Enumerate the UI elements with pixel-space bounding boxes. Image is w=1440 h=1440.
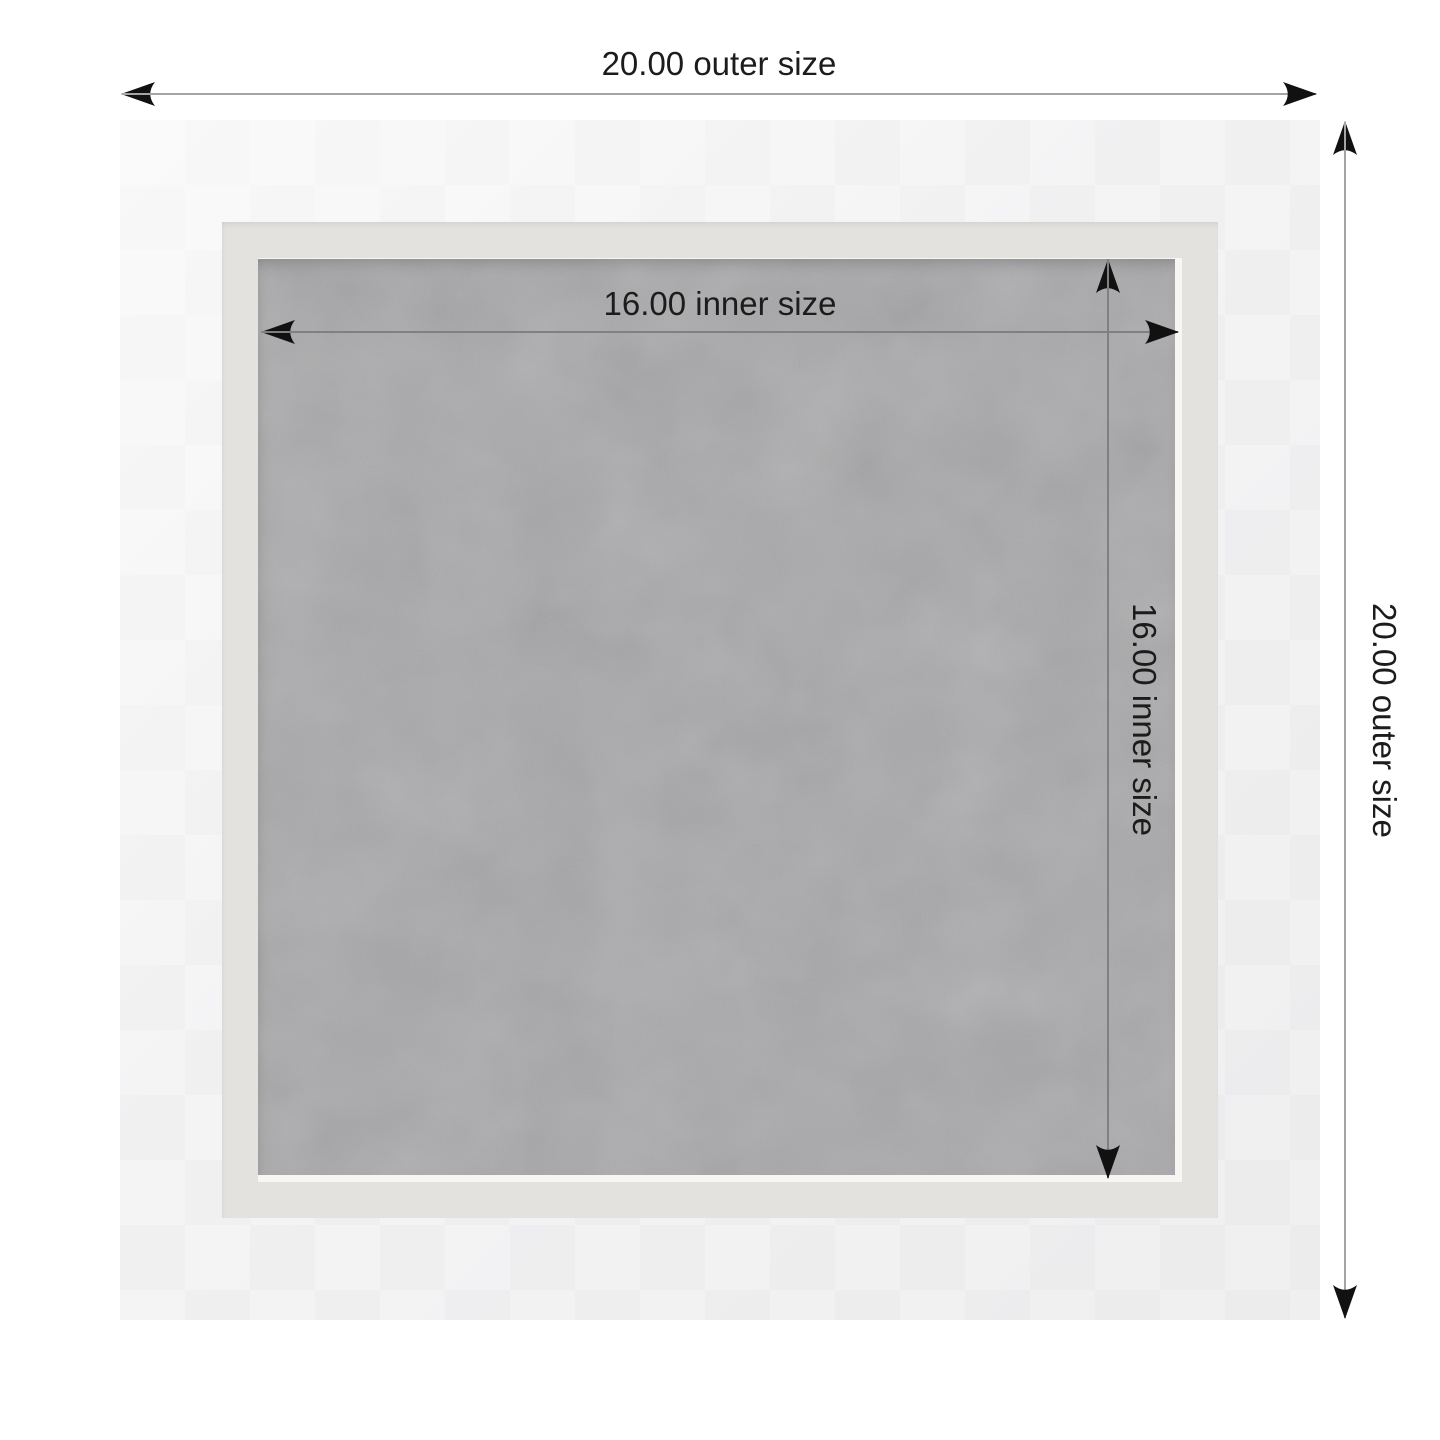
outer-width-dimension-line [120, 81, 1318, 107]
dimension-line [1107, 260, 1109, 1178]
arrow-down-icon [1095, 1144, 1121, 1180]
felt-liner [258, 258, 1182, 1182]
felt-texture [258, 259, 1175, 1175]
outer-height-label: 20.00 outer size [1356, 120, 1402, 1320]
dimension-line [1344, 122, 1346, 1318]
outer-height-dimension-line [1332, 120, 1358, 1320]
inner-height-label: 16.00 inner size [1116, 258, 1162, 1180]
inner-width-dimension-line [260, 319, 1180, 345]
product-dimension-diagram: 20.00 outer size 20.00 outer size 16.00 … [0, 0, 1440, 1440]
arrow-right-icon [1282, 81, 1318, 107]
inner-width-label: 16.00 inner size [260, 286, 1180, 322]
outer-width-label: 20.00 outer size [120, 46, 1318, 82]
felt-board-surface [258, 259, 1175, 1175]
dimension-line [122, 93, 1316, 95]
arrow-down-icon [1332, 1284, 1358, 1320]
frame-inner-bevel [222, 222, 1218, 1218]
dimension-line [262, 331, 1178, 333]
inner-height-dimension-line [1095, 258, 1121, 1180]
